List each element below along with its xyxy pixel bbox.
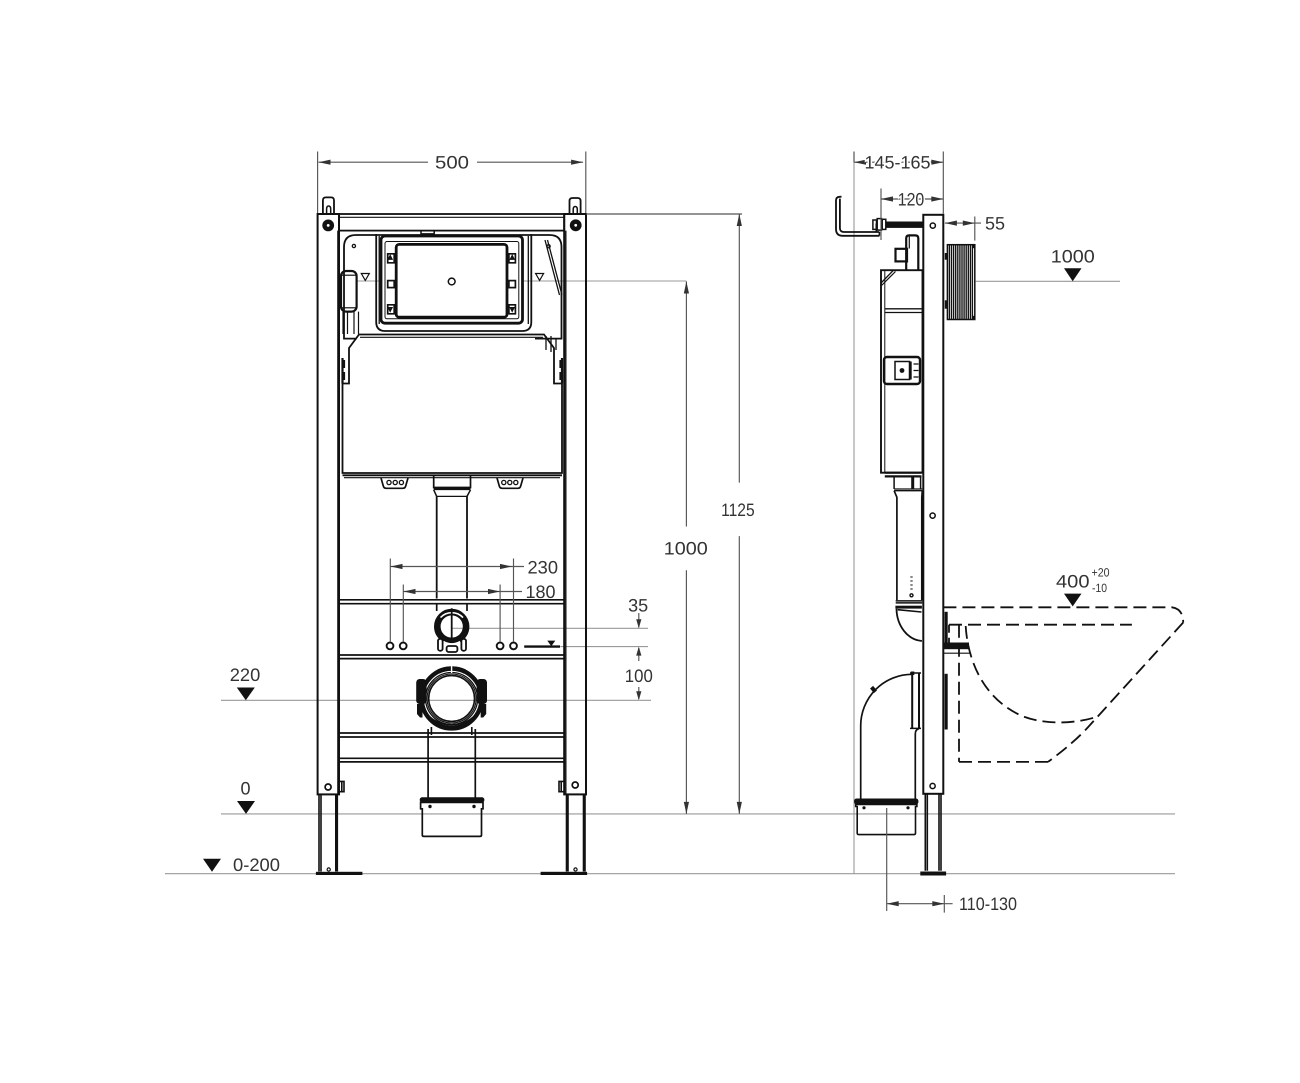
svg-text:1000: 1000 xyxy=(664,539,708,559)
svg-text:500: 500 xyxy=(435,153,469,173)
svg-text:1000: 1000 xyxy=(1051,247,1095,267)
svg-text:100: 100 xyxy=(625,666,653,686)
svg-text:-10: -10 xyxy=(1092,581,1107,595)
svg-text:230: 230 xyxy=(528,557,559,577)
svg-text:220: 220 xyxy=(230,665,261,685)
svg-text:0: 0 xyxy=(240,778,250,798)
svg-text:400: 400 xyxy=(1056,572,1090,592)
svg-text:110-130: 110-130 xyxy=(959,894,1017,914)
svg-text:120: 120 xyxy=(898,189,925,209)
svg-text:+20: +20 xyxy=(1092,566,1110,580)
svg-text:55: 55 xyxy=(985,213,1005,233)
svg-text:1125: 1125 xyxy=(721,500,755,520)
svg-text:180: 180 xyxy=(526,582,556,602)
svg-text:35: 35 xyxy=(628,596,648,616)
svg-text:145-165: 145-165 xyxy=(865,152,931,172)
svg-text:0-200: 0-200 xyxy=(233,855,280,875)
